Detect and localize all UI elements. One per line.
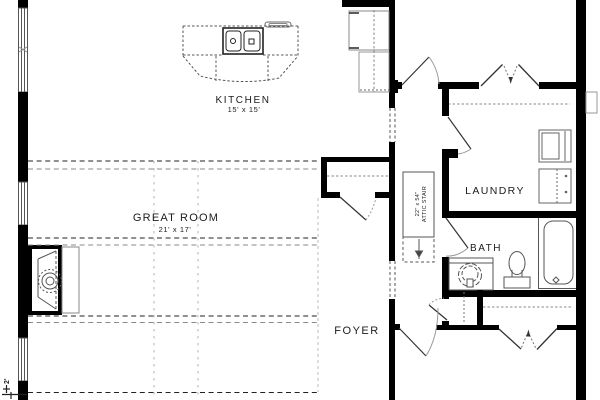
svg-text:22" x 54": 22" x 54" (415, 192, 421, 217)
svg-text:LAUNDRY: LAUNDRY (465, 185, 525, 197)
svg-text:BATH: BATH (470, 243, 502, 254)
svg-text:21' x 17': 21' x 17' (159, 225, 192, 234)
svg-text:15' x 15': 15' x 15' (228, 105, 261, 114)
svg-text:GREAT ROOM: GREAT ROOM (133, 212, 219, 224)
svg-text:FOYER: FOYER (334, 325, 379, 337)
svg-text:ATTIC STAIR: ATTIC STAIR (422, 186, 428, 222)
svg-text:2': 2' (4, 378, 11, 384)
